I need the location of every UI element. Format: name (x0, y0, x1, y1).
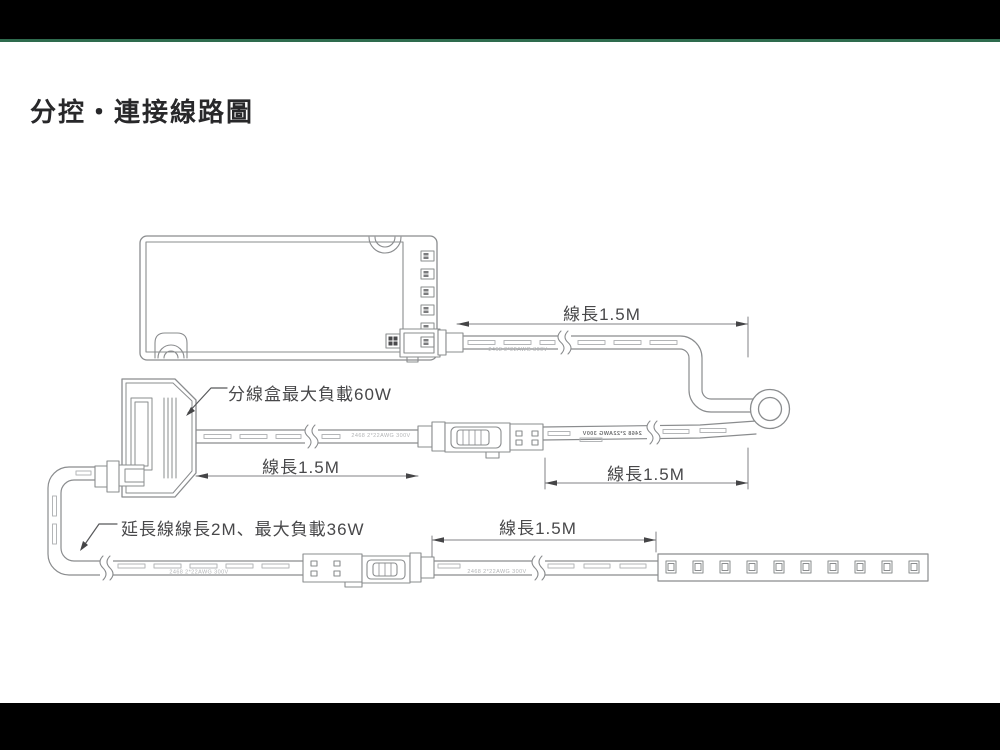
callout-label-extension-wire: 延長線線長2M、最大負載36W (121, 515, 365, 540)
dimension-label-controller-wire: 線長1.5M (537, 300, 667, 325)
splitter-input-plug (95, 461, 119, 492)
dimension-label-splitter-right-wire: 線長1.5M (581, 460, 711, 485)
callout-label-splitter-box: 分線盒最大負載60W (228, 380, 392, 405)
led-strip (658, 554, 928, 581)
wire-marking-mid-right-mirrored: 2468 2*22AWG 300V (582, 431, 641, 437)
splitter-box (119, 379, 196, 497)
wire-marking-mid-left: 2468 2*22AWG 300V (351, 433, 410, 439)
mid-connector-pair (418, 422, 543, 458)
wire-marking-bottom-left: 2468 2*22AWG 300V (169, 570, 228, 576)
wire-marking-bottom-right: 2468 2*22AWG 300V (467, 569, 526, 575)
bottom-connector-pair (303, 553, 434, 587)
dimension-label-strip-wire: 線長1.5M (473, 514, 603, 539)
dimension-label-splitter-left-wire: 線長1.5M (236, 453, 366, 478)
page: 分控・連接線路圖 (0, 0, 1000, 750)
round-connector (751, 390, 790, 429)
wire-marking-top: 2468 2*22AWG 300V (488, 347, 547, 353)
wiring-diagram: 2468 2*22AWG 300V 2468 2*22AWG 300V 2468… (0, 0, 1000, 750)
